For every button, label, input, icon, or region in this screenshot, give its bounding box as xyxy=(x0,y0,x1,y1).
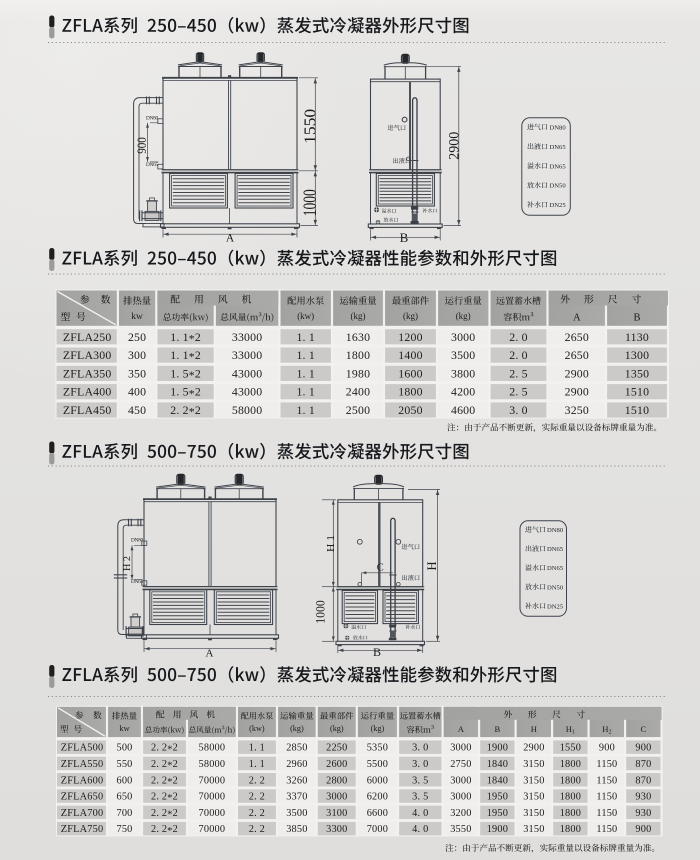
svg-text:1. 1: 1. 1 xyxy=(296,348,315,362)
svg-text:(kg): (kg) xyxy=(403,311,418,321)
svg-text:2. 2*2: 2. 2*2 xyxy=(151,759,178,772)
svg-text:ZFLA600: ZFLA600 xyxy=(61,775,104,786)
svg-text:2. 2*2: 2. 2*2 xyxy=(151,775,178,788)
svg-text:2. 2: 2. 2 xyxy=(249,808,265,819)
svg-text:2. 2: 2. 2 xyxy=(249,824,265,835)
svg-text:2900: 2900 xyxy=(523,743,544,754)
svg-text:DN65: DN65 xyxy=(550,163,567,170)
svg-text:DN25: DN25 xyxy=(550,202,567,209)
svg-text:43000: 43000 xyxy=(232,366,263,380)
svg-text:1550: 1550 xyxy=(560,743,581,754)
svg-text:1. 1*2: 1. 1*2 xyxy=(170,330,201,346)
svg-text:6000: 6000 xyxy=(367,775,388,786)
svg-text:58000: 58000 xyxy=(199,743,226,754)
svg-text:H: H xyxy=(424,562,439,571)
svg-text:H: H xyxy=(531,724,537,734)
svg-text:1. 1: 1. 1 xyxy=(249,759,265,770)
svg-text:3100: 3100 xyxy=(326,808,347,819)
svg-text:1000: 1000 xyxy=(312,600,327,624)
svg-text:1150: 1150 xyxy=(596,824,617,835)
svg-text:4. 0: 4. 0 xyxy=(412,808,428,819)
svg-text:43000: 43000 xyxy=(232,385,263,399)
svg-text:3000: 3000 xyxy=(451,330,475,344)
svg-text:(kg): (kg) xyxy=(456,311,471,321)
svg-text:58000: 58000 xyxy=(199,759,226,770)
svg-text:930: 930 xyxy=(635,792,651,803)
svg-text:1550: 1550 xyxy=(301,109,320,144)
svg-text:3000: 3000 xyxy=(326,792,347,803)
svg-text:ZFLA450: ZFLA450 xyxy=(63,403,112,417)
svg-text:3000: 3000 xyxy=(450,775,471,786)
svg-text:1800: 1800 xyxy=(560,808,581,819)
svg-text:870: 870 xyxy=(635,759,651,770)
svg-text:(kw): (kw) xyxy=(249,724,265,733)
svg-text:1510: 1510 xyxy=(625,403,649,417)
svg-text:2900: 2900 xyxy=(565,366,589,380)
svg-text:600: 600 xyxy=(116,775,132,786)
svg-text:70000: 70000 xyxy=(199,775,226,786)
svg-text:1000: 1000 xyxy=(301,189,321,216)
svg-text:350: 350 xyxy=(128,366,146,380)
svg-text:DN50: DN50 xyxy=(547,584,564,591)
svg-text:(kg): (kg) xyxy=(351,311,366,321)
svg-text:3250: 3250 xyxy=(565,403,589,417)
svg-text:A: A xyxy=(573,312,581,323)
svg-text:DN65: DN65 xyxy=(547,565,564,572)
svg-text:3150: 3150 xyxy=(523,792,544,803)
svg-text:2850: 2850 xyxy=(286,743,307,754)
svg-text:3800: 3800 xyxy=(451,366,475,380)
svg-text:1800: 1800 xyxy=(346,348,370,362)
svg-text:3150: 3150 xyxy=(523,824,544,835)
svg-text:3260: 3260 xyxy=(286,775,307,786)
svg-text:750: 750 xyxy=(116,824,132,835)
svg-text:1. 1: 1. 1 xyxy=(296,385,315,399)
svg-text:3150: 3150 xyxy=(523,759,544,770)
svg-text:930: 930 xyxy=(635,808,651,819)
svg-text:2800: 2800 xyxy=(326,775,347,786)
svg-text:1. 1: 1. 1 xyxy=(296,330,315,344)
svg-text:(kg): (kg) xyxy=(371,724,385,733)
svg-text:33000: 33000 xyxy=(232,330,263,344)
svg-text:ZFLA550: ZFLA550 xyxy=(61,759,104,770)
svg-text:1510: 1510 xyxy=(625,385,649,399)
svg-text:7000: 7000 xyxy=(367,824,388,835)
svg-text:2500: 2500 xyxy=(346,403,370,417)
svg-text:900: 900 xyxy=(635,743,651,754)
svg-text:3550: 3550 xyxy=(450,824,471,835)
svg-text:DN80: DN80 xyxy=(547,527,564,534)
svg-text:4200: 4200 xyxy=(451,385,475,399)
svg-text:(kg): (kg) xyxy=(330,724,344,733)
svg-text:5500: 5500 xyxy=(367,759,388,770)
svg-text:2. 2*2: 2. 2*2 xyxy=(151,808,178,821)
svg-text:250: 250 xyxy=(128,330,146,344)
svg-text:900: 900 xyxy=(635,824,651,835)
svg-text:1600: 1600 xyxy=(398,366,422,380)
svg-text:2. 5: 2. 5 xyxy=(509,385,528,399)
svg-text:C: C xyxy=(377,563,384,574)
svg-text:3. 5: 3. 5 xyxy=(412,775,428,786)
svg-text:1. 1: 1. 1 xyxy=(296,403,315,417)
svg-text:ZFLA750: ZFLA750 xyxy=(61,824,104,835)
svg-text:1350: 1350 xyxy=(625,366,649,380)
svg-text:4600: 4600 xyxy=(451,403,475,417)
svg-text:2750: 2750 xyxy=(450,759,471,770)
svg-text:1840: 1840 xyxy=(487,759,508,770)
svg-text:3500: 3500 xyxy=(286,808,307,819)
svg-text:1200: 1200 xyxy=(398,330,422,344)
svg-text:B: B xyxy=(400,230,409,245)
svg-text:3500: 3500 xyxy=(451,348,475,362)
svg-text:2250: 2250 xyxy=(326,743,347,754)
svg-text:1150: 1150 xyxy=(596,759,617,770)
svg-text:A: A xyxy=(226,233,235,245)
svg-text:1800: 1800 xyxy=(560,759,581,770)
svg-text:1150: 1150 xyxy=(596,775,617,786)
svg-text:700: 700 xyxy=(116,808,132,819)
svg-text:1. 1: 1. 1 xyxy=(296,366,315,380)
svg-text:3300: 3300 xyxy=(326,824,347,835)
svg-text:B: B xyxy=(633,312,640,323)
svg-text:450: 450 xyxy=(128,403,146,417)
svg-text:1400: 1400 xyxy=(398,348,422,362)
svg-text:C: C xyxy=(641,724,647,734)
svg-text:DN65: DN65 xyxy=(146,162,158,168)
svg-text:3. 0: 3. 0 xyxy=(509,403,528,417)
svg-text:(kw): (kw) xyxy=(297,311,314,321)
svg-text:870: 870 xyxy=(635,775,651,786)
svg-text:400: 400 xyxy=(128,385,146,399)
svg-text:70000: 70000 xyxy=(199,792,226,803)
svg-text:DN80: DN80 xyxy=(146,115,158,121)
svg-text:1150: 1150 xyxy=(596,808,617,819)
svg-text:6600: 6600 xyxy=(367,808,388,819)
svg-text:2. 2*2: 2. 2*2 xyxy=(151,792,178,805)
svg-text:1840: 1840 xyxy=(487,775,508,786)
svg-text:ZFLA700: ZFLA700 xyxy=(61,808,104,819)
svg-text:1900: 1900 xyxy=(487,824,508,835)
svg-text:1. 5*2: 1. 5*2 xyxy=(170,366,201,382)
svg-text:550: 550 xyxy=(116,759,132,770)
svg-text:650: 650 xyxy=(116,792,132,803)
svg-text:3000: 3000 xyxy=(450,792,471,803)
svg-text:1130: 1130 xyxy=(625,330,649,344)
svg-text:1800: 1800 xyxy=(560,775,581,786)
svg-text:3. 0: 3. 0 xyxy=(412,759,428,770)
svg-text:500: 500 xyxy=(116,743,132,754)
svg-text:2900: 2900 xyxy=(447,132,463,160)
svg-text:1. 1*2: 1. 1*2 xyxy=(170,348,201,364)
svg-text:5350: 5350 xyxy=(367,743,388,754)
svg-text:70000: 70000 xyxy=(199,808,226,819)
svg-text:900: 900 xyxy=(135,137,149,154)
svg-text:1950: 1950 xyxy=(487,808,508,819)
svg-text:ZFLA500: ZFLA500 xyxy=(61,743,104,754)
svg-text:900: 900 xyxy=(599,743,615,754)
svg-text:2960: 2960 xyxy=(286,759,307,770)
svg-text:DN65: DN65 xyxy=(550,144,567,151)
svg-text:2650: 2650 xyxy=(565,348,589,362)
svg-text:kw: kw xyxy=(131,312,143,322)
svg-text:DN25: DN25 xyxy=(547,603,564,610)
svg-text:A: A xyxy=(206,648,214,660)
svg-text:4. 0: 4. 0 xyxy=(412,824,428,835)
svg-text:3200: 3200 xyxy=(450,808,471,819)
svg-text:1. 5*2: 1. 5*2 xyxy=(170,385,201,401)
svg-text:DN65: DN65 xyxy=(547,546,564,553)
svg-text:ZFLA350: ZFLA350 xyxy=(63,366,112,380)
svg-text:3. 5: 3. 5 xyxy=(412,792,428,803)
svg-text:3370: 3370 xyxy=(286,792,307,803)
svg-text:1950: 1950 xyxy=(487,792,508,803)
svg-text:DN50: DN50 xyxy=(550,183,567,190)
svg-text:ZFLA300: ZFLA300 xyxy=(63,348,112,362)
svg-text:3. 0: 3. 0 xyxy=(412,743,428,754)
svg-text:2. 2*2: 2. 2*2 xyxy=(151,743,178,756)
svg-text:A: A xyxy=(458,724,465,734)
svg-text:H 1: H 1 xyxy=(326,535,337,552)
svg-text:2. 2: 2. 2 xyxy=(249,775,265,786)
svg-text:2. 0: 2. 0 xyxy=(509,330,528,344)
svg-text:1800: 1800 xyxy=(560,824,581,835)
svg-text:33000: 33000 xyxy=(232,348,263,362)
svg-text:1900: 1900 xyxy=(487,743,508,754)
svg-text:kw: kw xyxy=(119,723,130,733)
svg-text:2. 2: 2. 2 xyxy=(249,792,265,803)
svg-text:B: B xyxy=(495,724,501,734)
svg-text:2900: 2900 xyxy=(565,385,589,399)
svg-text:1. 1: 1. 1 xyxy=(249,743,265,754)
svg-text:3150: 3150 xyxy=(523,808,544,819)
svg-text:3000: 3000 xyxy=(450,743,471,754)
svg-text:H 2: H 2 xyxy=(122,556,132,571)
svg-text:1800: 1800 xyxy=(398,385,422,399)
svg-text:ZFLA250: ZFLA250 xyxy=(63,330,112,344)
svg-text:1300: 1300 xyxy=(625,348,649,362)
svg-text:2650: 2650 xyxy=(565,330,589,344)
svg-text:2. 2*2: 2. 2*2 xyxy=(170,403,201,419)
svg-text:3850: 3850 xyxy=(286,824,307,835)
svg-text:B: B xyxy=(373,645,381,659)
svg-text:1150: 1150 xyxy=(596,792,617,803)
svg-text:2. 0: 2. 0 xyxy=(509,348,528,362)
svg-text:300: 300 xyxy=(128,348,146,362)
svg-text:1630: 1630 xyxy=(346,330,370,344)
svg-text:58000: 58000 xyxy=(232,403,263,417)
svg-text:ZFLA650: ZFLA650 xyxy=(61,792,104,803)
svg-text:1980: 1980 xyxy=(346,366,370,380)
svg-text:2. 5: 2. 5 xyxy=(509,366,528,380)
svg-text:2400: 2400 xyxy=(346,385,370,399)
svg-text:2600: 2600 xyxy=(326,759,347,770)
svg-text:70000: 70000 xyxy=(199,824,226,835)
svg-text:(kg): (kg) xyxy=(290,724,304,733)
svg-text:2. 2*2: 2. 2*2 xyxy=(151,824,178,837)
svg-text:ZFLA400: ZFLA400 xyxy=(63,385,112,399)
svg-text:2050: 2050 xyxy=(398,403,422,417)
svg-text:3150: 3150 xyxy=(523,775,544,786)
svg-text:1800: 1800 xyxy=(560,792,581,803)
svg-text:DN80: DN80 xyxy=(550,125,567,132)
svg-text:6200: 6200 xyxy=(367,792,388,803)
